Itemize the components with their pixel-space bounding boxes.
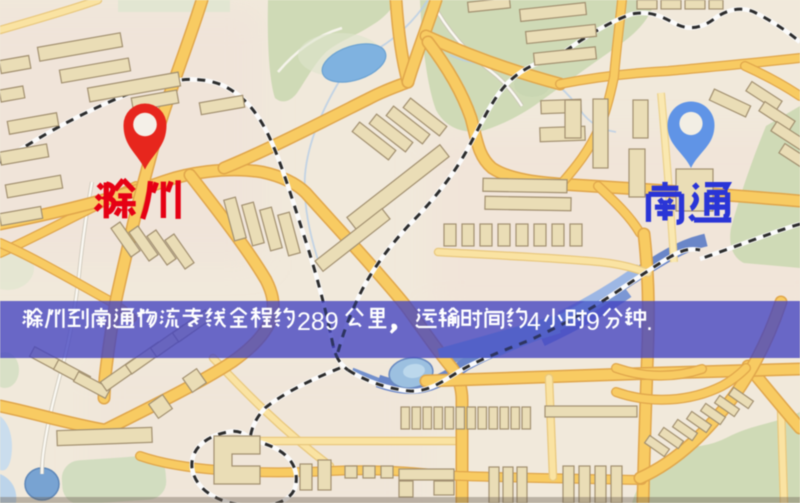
svg-text:4: 4: [527, 308, 541, 336]
svg-text:.: .: [646, 308, 653, 336]
svg-text:289: 289: [297, 308, 339, 336]
svg-text:9: 9: [586, 308, 600, 336]
